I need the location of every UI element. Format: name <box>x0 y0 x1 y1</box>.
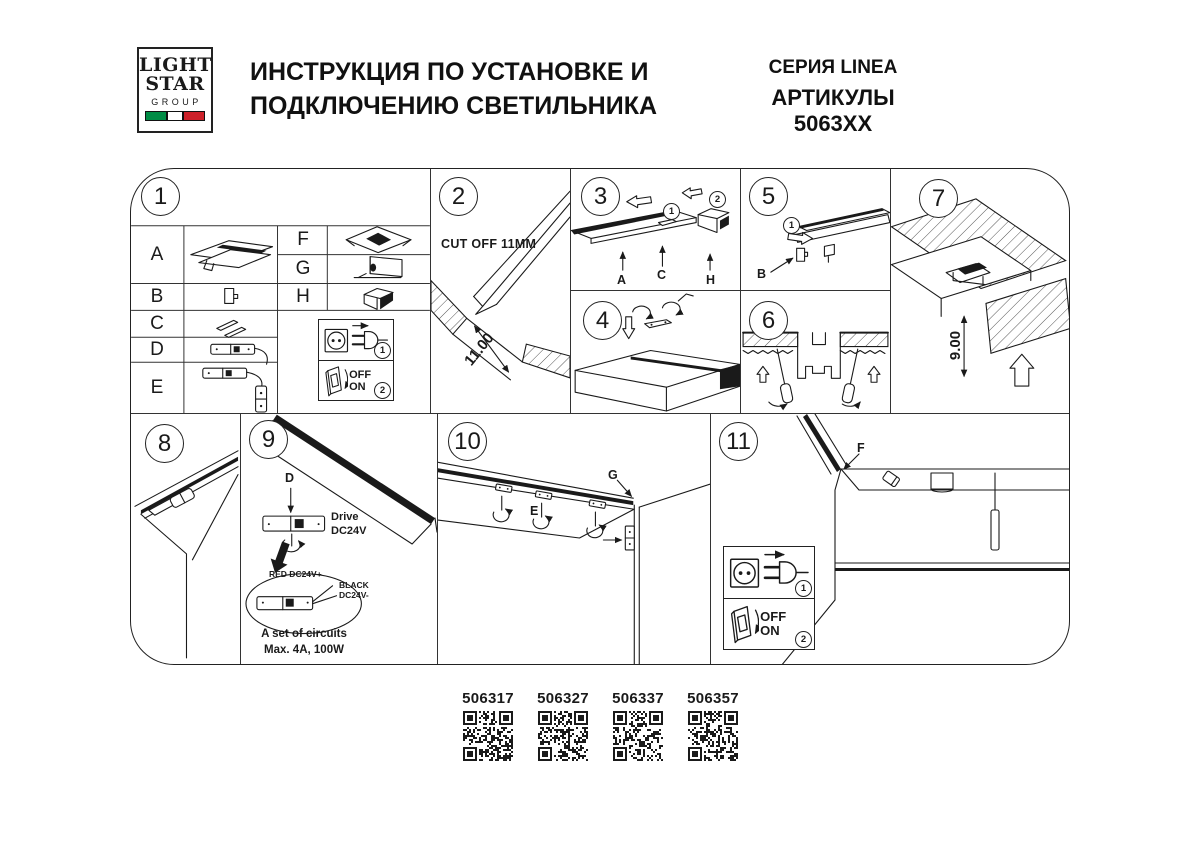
series-info: СЕРИЯ LINEA АРТИКУЛЫ 5063XX <box>733 57 933 137</box>
plug-in-step: 1 <box>724 547 814 599</box>
step-10-panel: 10 E G <box>438 414 711 665</box>
step-10-number: 10 <box>448 422 487 461</box>
sequence-1-badge: 1 <box>783 217 800 234</box>
part-label-d: D <box>150 339 164 361</box>
title-line-1: ИНСТРУКЦИЯ ПО УСТАНОВКЕ И <box>250 55 657 89</box>
part-ref-d: D <box>285 471 294 485</box>
on-label: ON <box>760 623 780 638</box>
part-label-h: H <box>296 286 310 308</box>
off-on-label: OFF ON <box>349 369 371 393</box>
part-ref-h: H <box>706 273 715 287</box>
step-1-panel: 1 <box>131 169 431 414</box>
off-on-label: OFF ON <box>760 610 786 638</box>
step-5-number: 5 <box>749 177 788 216</box>
step-3-number: 3 <box>581 177 620 216</box>
driver-label-line1: Drive <box>331 511 359 523</box>
qr-item-506317: 506317 <box>457 690 519 761</box>
sequence-2-badge: 2 <box>374 382 391 399</box>
part-ref-c: C <box>657 268 666 282</box>
power-legend: 1 OFF ON 2 <box>723 546 815 650</box>
step-11-panel: 11 F <box>711 414 1070 665</box>
page-title: ИНСТРУКЦИЯ ПО УСТАНОВКЕ И ПОДКЛЮЧЕНИЮ СВ… <box>250 55 657 123</box>
step-9-panel: 9 D Drive <box>241 414 438 665</box>
sequence-1-badge: 1 <box>795 580 812 597</box>
cut-off-note: CUT OFF 11MM <box>441 237 536 251</box>
qr-item-506337: 506337 <box>607 690 669 761</box>
step-7-panel: 7 9.00 <box>891 169 1070 414</box>
circuits-note-line1: A set of circuits <box>244 628 364 640</box>
switch-icon <box>728 603 759 644</box>
step-9-number: 9 <box>249 420 288 459</box>
sequence-2-badge: 2 <box>709 191 726 208</box>
qr-item-506327: 506327 <box>532 690 594 761</box>
step-2-number: 2 <box>439 177 478 216</box>
step-8-panel: 8 <box>131 414 241 665</box>
power-legend: 1 OFF ON 2 <box>318 319 394 401</box>
step-6-number: 6 <box>749 301 788 340</box>
part-label-b: B <box>151 286 164 308</box>
part-label-a: A <box>151 244 164 266</box>
part-label-c: C <box>150 313 164 335</box>
part-ref-f: F <box>857 441 865 455</box>
part-ref-g: G <box>608 468 618 482</box>
italian-flag-bar <box>145 111 205 121</box>
qr-code <box>538 711 588 761</box>
logo-word-star: STAR <box>139 75 211 94</box>
article-number: 506357 <box>682 690 744 707</box>
part-ref-a: A <box>617 273 626 287</box>
step-2-panel: 2 CUT OFF 11MM 11.00 <box>431 169 571 414</box>
article-number: 506317 <box>457 690 519 707</box>
step-6-panel: 6 <box>741 291 891 414</box>
plug-in-step: 1 <box>319 320 393 361</box>
sequence-2-badge: 2 <box>795 631 812 648</box>
step-4-panel: 4 <box>571 291 741 414</box>
wire-black-label-line1: BLACK <box>339 580 369 590</box>
wire-red-label: RED DC24V+ <box>269 569 322 579</box>
qr-item-506357: 506357 <box>682 690 744 761</box>
switch-on-step: OFF ON 2 <box>724 599 814 650</box>
instruction-sheet: LIGHT STAR GROUP ИНСТРУКЦИЯ ПО УСТАНОВКЕ… <box>0 0 1200 849</box>
ceiling-recess-drawing <box>891 169 1070 413</box>
step-1-number: 1 <box>141 177 180 216</box>
circuits-note-line2: Max. 4A, 100W <box>244 644 364 656</box>
step-8-number: 8 <box>145 424 184 463</box>
part-ref-e: E <box>530 504 538 518</box>
title-line-2: ПОДКЛЮЧЕНИЮ СВЕТИЛЬНИКА <box>250 89 657 123</box>
wire-black-label-line2: DC24V- <box>339 590 369 600</box>
lightstar-logo: LIGHT STAR GROUP <box>137 47 213 133</box>
part-label-e: E <box>151 377 164 399</box>
series-name: СЕРИЯ LINEA <box>733 57 933 79</box>
part-label-g: G <box>296 258 311 280</box>
article-number: 506327 <box>532 690 594 707</box>
qr-code <box>688 711 738 761</box>
step-11-number: 11 <box>719 422 758 461</box>
qr-code <box>613 711 663 761</box>
off-label: OFF <box>760 609 786 624</box>
sequence-1-badge: 1 <box>663 203 680 220</box>
logo-word-group: GROUP <box>139 97 211 107</box>
off-label: OFF <box>349 369 371 381</box>
article-numbers: АРТИКУЛЫ 5063XX <box>733 85 933 137</box>
step-5-panel: 5 1 B <box>741 169 891 291</box>
part-ref-b: B <box>757 267 766 281</box>
article-number: 506337 <box>607 690 669 707</box>
part-label-f: F <box>297 229 309 251</box>
dimension-9mm: 9.00 <box>947 331 964 360</box>
step-4-number: 4 <box>583 301 622 340</box>
driver-label-line2: DC24V <box>331 525 366 537</box>
diagram-board: 1 <box>130 168 1070 665</box>
step-3-panel: 3 1 2 A C H <box>571 169 741 291</box>
qr-code <box>463 711 513 761</box>
on-label: ON <box>349 381 366 393</box>
switch-icon <box>323 364 348 397</box>
switch-on-step: OFF ON 2 <box>319 361 393 400</box>
step-7-number: 7 <box>919 179 958 218</box>
